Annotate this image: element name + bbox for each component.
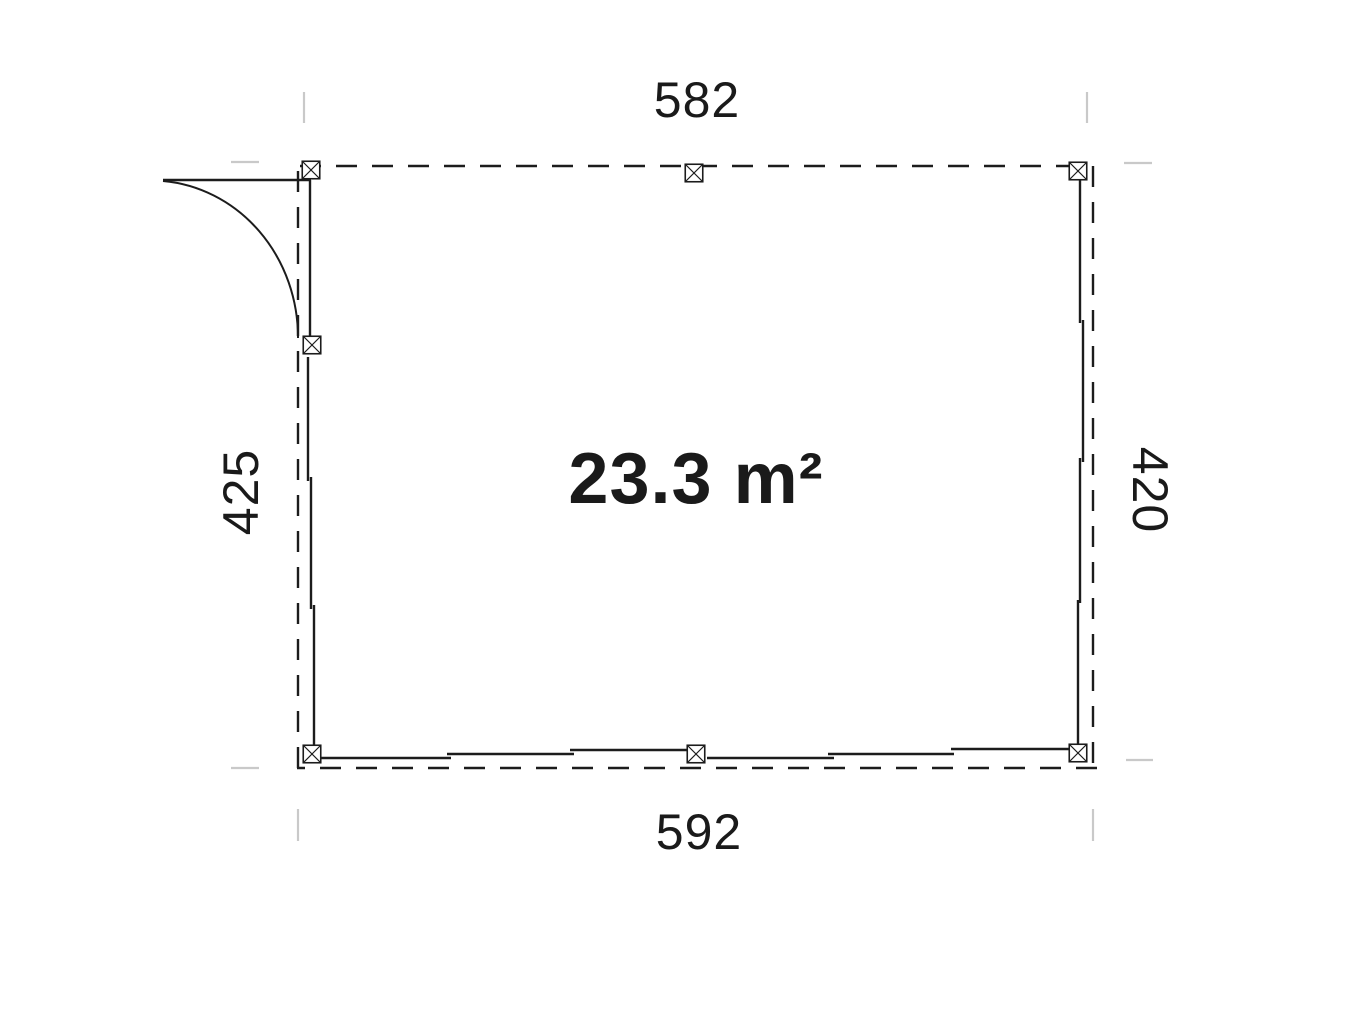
post-bottom-right bbox=[1069, 744, 1087, 762]
door-arc bbox=[163, 181, 298, 338]
area-label: 23.3 m² bbox=[568, 438, 823, 520]
door-swing bbox=[163, 180, 311, 338]
post-top-right bbox=[1069, 162, 1087, 180]
dimension-left: 425 bbox=[212, 449, 270, 535]
post-door-side bbox=[303, 336, 321, 354]
post-bottom-left bbox=[303, 745, 321, 763]
post-top-middle bbox=[685, 164, 703, 182]
dimension-bottom: 592 bbox=[656, 803, 742, 861]
post-bottom-middle bbox=[687, 745, 705, 763]
post-top-left bbox=[302, 161, 320, 179]
dimension-top: 582 bbox=[654, 71, 740, 129]
dimension-right: 420 bbox=[1121, 447, 1179, 533]
floor-plan-canvas: 582 592 425 420 23.3 m² bbox=[0, 0, 1347, 1010]
